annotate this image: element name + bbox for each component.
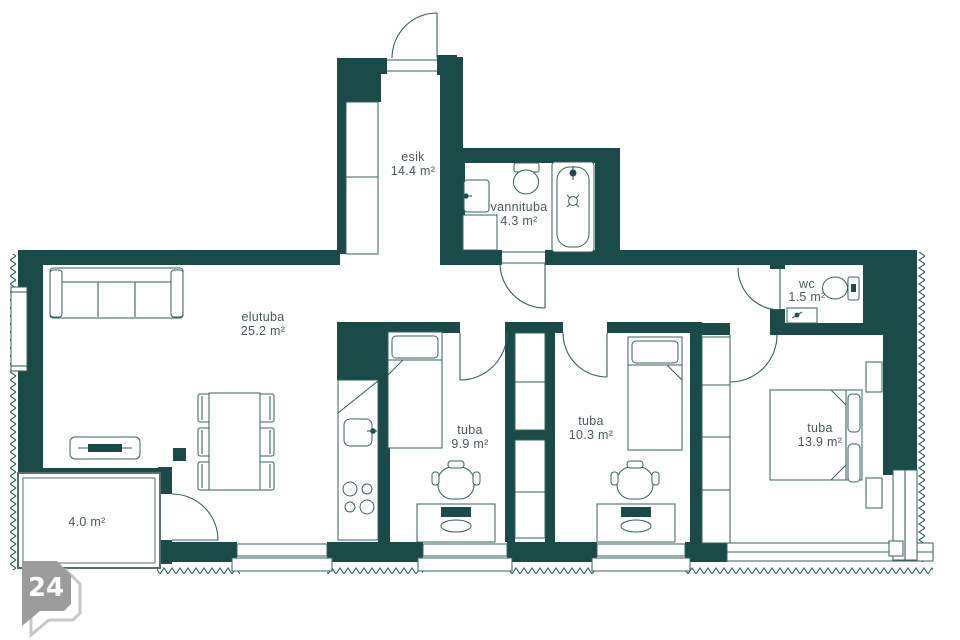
nightstand-2 [866, 478, 882, 508]
kitchen-sink [344, 419, 377, 446]
master-bedroom-furniture [702, 337, 882, 543]
room-area-tuba-master: 13.9 m² [798, 435, 842, 449]
armchair-2 [611, 461, 659, 499]
window-band-master [727, 470, 933, 561]
room-label-tuba-master: tuba [807, 421, 833, 435]
doors [172, 13, 780, 540]
room-label-tuba-small: tuba [457, 423, 483, 437]
nightstand-1 [866, 362, 882, 392]
zigzag-bottom-2 [327, 565, 423, 574]
room-label-elutuba: elutuba [241, 310, 284, 324]
column [173, 448, 186, 461]
tv-bench [70, 437, 140, 459]
bed-single-1 [388, 332, 442, 448]
zigzag-bottom-4 [685, 565, 933, 574]
window-livingroom [232, 544, 332, 571]
bedroom2-door [563, 333, 607, 377]
wc-sink [787, 308, 817, 323]
bathtub [552, 162, 594, 252]
desk-1 [417, 504, 495, 542]
sofa [50, 268, 183, 318]
bathroom-door [500, 252, 545, 308]
master-closet [702, 337, 730, 543]
wc-toilet [823, 277, 860, 300]
room-label-tuba-mid: tuba [578, 414, 604, 428]
room-area-tuba-mid: 10.3 m² [569, 428, 613, 442]
dining-table [198, 393, 274, 490]
unit-number: 24 [28, 573, 64, 603]
room-area-tuba-small: 9.9 m² [451, 437, 488, 451]
room-area-elutuba: 25.2 m² [241, 324, 285, 338]
wc-door [738, 268, 780, 310]
washing-machine [463, 215, 497, 250]
hallway-wardrobe [346, 102, 378, 254]
entrance-door [387, 13, 437, 71]
bedroom1-door [460, 333, 507, 380]
window-bedroom2 [592, 544, 690, 571]
kitchen-fixtures [338, 380, 378, 540]
desk-2 [597, 504, 675, 542]
bed-single-2 [628, 337, 682, 450]
zigzag-bottom-1 [157, 565, 240, 574]
room-label-esik: esik [401, 150, 425, 164]
room-area-vannituba: 4.3 m² [500, 214, 537, 228]
armchair-1 [432, 461, 480, 499]
bathroom-sink [463, 180, 489, 212]
window-left [11, 287, 27, 371]
room-area-balcony: 4.0 m² [68, 515, 105, 529]
kitchen-counter [338, 380, 378, 540]
window-bedroom1 [418, 544, 512, 571]
master-bedroom-door [730, 335, 777, 382]
living-room-furniture [50, 268, 274, 490]
zigzag-bottom-3 [507, 565, 597, 574]
room-area-wc: 1.5 m² [788, 290, 825, 304]
toilet [514, 163, 540, 194]
room-label-wc: wc [798, 277, 815, 291]
room-area-esik: 14.4 m² [391, 164, 435, 178]
balcony-door [172, 494, 218, 540]
room-label-vannituba: vannituba [491, 200, 548, 214]
unit-badge[interactable]: 24 [22, 561, 80, 635]
floor-plan: esik 14.4 m² vannituba 4.3 m² elutuba 25… [0, 0, 960, 640]
